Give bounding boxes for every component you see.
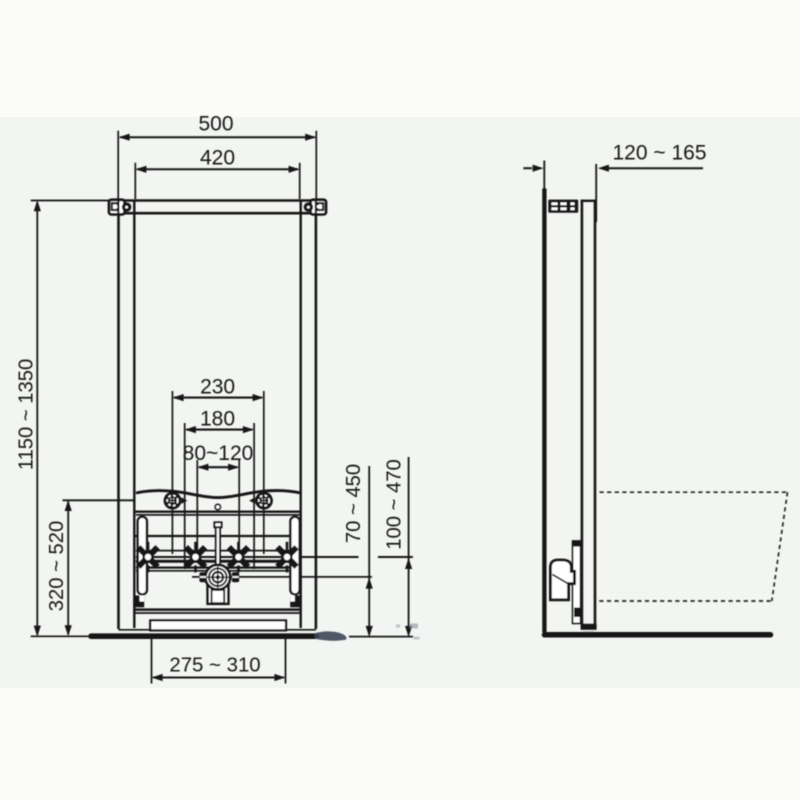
svg-text:320 ~ 520: 320 ~ 520 bbox=[46, 521, 68, 611]
svg-text:120 ~ 165: 120 ~ 165 bbox=[612, 142, 706, 165]
svg-text:230: 230 bbox=[200, 375, 235, 398]
svg-text:180: 180 bbox=[200, 407, 235, 430]
svg-text:275 ~ 310: 275 ~ 310 bbox=[169, 655, 260, 677]
svg-text:80~120: 80~120 bbox=[183, 442, 254, 465]
svg-text:1150 ~ 1350: 1150 ~ 1350 bbox=[16, 359, 38, 470]
svg-text:500: 500 bbox=[198, 113, 233, 136]
svg-text:420: 420 bbox=[200, 147, 235, 170]
svg-text:70 ~ 450: 70 ~ 450 bbox=[343, 464, 365, 543]
svg-text:100 ~ 470: 100 ~ 470 bbox=[384, 459, 406, 549]
